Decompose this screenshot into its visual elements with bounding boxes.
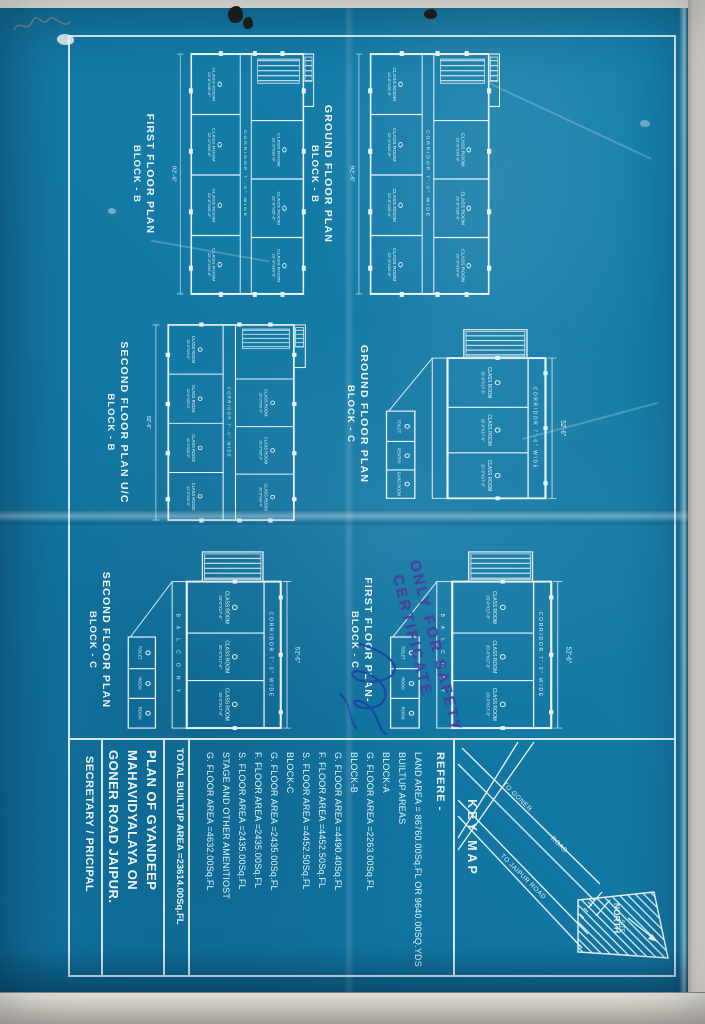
svg-text:22'-0"X20'-0": 22'-0"X20'-0" bbox=[455, 196, 459, 221]
width-dimension: 52'-6" bbox=[293, 647, 300, 664]
svg-text:20'-0"X17'-6": 20'-0"X17'-6" bbox=[218, 692, 223, 716]
reference-line: G. FLOOR AREA =4632.00Sq.FL bbox=[202, 752, 218, 967]
reference-line: G. FLOOR AREA =2435.00Sq.FL bbox=[266, 752, 282, 967]
annex-labels: TOILET ROOM ROOM bbox=[138, 646, 151, 720]
svg-text:CLASS ROOM: CLASS ROOM bbox=[212, 128, 216, 162]
key-map: SITE NORTH TO GONER ROAD TO JAIPUR ROAD … bbox=[458, 742, 674, 968]
reference-line: F. FLOOR AREA =2435.00Sq.FL bbox=[250, 752, 266, 967]
svg-text:22'-0"X20'-0": 22'-0"X20'-0" bbox=[207, 133, 210, 158]
reference-line: LAND AREA = 86760.00Sq.FL OR 9640.00SQ.Y… bbox=[410, 752, 426, 967]
plan-title: SECOND FLOOR PLAN BLOCK - C bbox=[87, 546, 112, 734]
svg-text:22'-0"X20'-0": 22'-0"X20'-0" bbox=[186, 340, 190, 361]
svg-text:TO JAIPUR ROAD: TO JAIPUR ROAD bbox=[499, 853, 547, 901]
total-divider-top bbox=[188, 740, 190, 975]
paper-edge-right bbox=[688, 0, 705, 1024]
reference-list: LAND AREA = 86760.00Sq.FL OR 9640.00SQ.Y… bbox=[202, 752, 426, 967]
reference-line: G. FLOOR AREA =2263.00Sq.FL bbox=[362, 752, 378, 967]
svg-text:22'-0"X20'-0": 22'-0"X20'-0" bbox=[272, 138, 275, 163]
svg-text:CLASS ROOM: CLASS ROOM bbox=[191, 434, 196, 462]
svg-text:CLASS ROOM: CLASS ROOM bbox=[223, 591, 229, 624]
svg-text:CLASS ROOM: CLASS ROOM bbox=[460, 133, 464, 167]
floor-plan-drawing: CORRIDOR 7'-0" WIDE CLASS ROOM22'-0"X20'… bbox=[140, 320, 308, 525]
room-labels: CLASS ROOM20'-0"X17'-6" CLASS ROOM20'-0"… bbox=[480, 367, 500, 491]
ink-stain bbox=[243, 17, 253, 29]
corridor-label: CORRIDOR 7'-0" WIDE bbox=[531, 387, 537, 470]
plan-title: FIRST FLOOR PLAN BLOCK - B bbox=[131, 48, 156, 300]
svg-text:22'-0"X20'-0": 22'-0"X20'-0" bbox=[272, 196, 275, 221]
corridor-label: CORRIDOR 7'-0" WIDE bbox=[226, 387, 231, 458]
room-labels: CLASS ROOM20'-0"X17'-6" CLASS ROOM20'-0"… bbox=[218, 591, 237, 721]
svg-text:CLASS ROOM: CLASS ROOM bbox=[212, 68, 216, 102]
svg-text:CLASS ROOM: CLASS ROOM bbox=[392, 188, 396, 222]
width-dimension: 92'-6" bbox=[171, 166, 176, 183]
svg-text:20'-0"X17'-6": 20'-0"X17'-6" bbox=[485, 692, 490, 716]
svg-text:22'-0"X20'-0": 22'-0"X20'-0" bbox=[387, 72, 391, 97]
svg-text:CLASS ROOM: CLASS ROOM bbox=[191, 385, 196, 413]
svg-text:CLASS ROOM: CLASS ROOM bbox=[191, 336, 196, 364]
reference-line: BLOCK-A bbox=[378, 752, 394, 967]
svg-text:CLASS ROOM: CLASS ROOM bbox=[392, 248, 396, 282]
reference-line: BUILTUP AREAS bbox=[394, 752, 410, 967]
svg-text:CLASS ROOM: CLASS ROOM bbox=[191, 483, 196, 511]
svg-text:PENTRY: PENTRY bbox=[396, 448, 401, 464]
floor-plan-drawing: CORRIDOR 7'-0" WIDE CLASS ROOM22'-0"X20'… bbox=[344, 48, 502, 300]
svg-text:TO GONER: TO GONER bbox=[501, 781, 533, 813]
svg-text:ROOM: ROOM bbox=[138, 707, 143, 720]
svg-text:NORTH: NORTH bbox=[612, 903, 622, 933]
plan-ground-floor-block-c: 52'-6" CORRIDOR 7'-0" WIDE CLASS ROOM20'… bbox=[345, 324, 576, 504]
svg-text:CLASS ROOM: CLASS ROOM bbox=[491, 591, 497, 624]
total-builtup-area: TOTAL BUILTUP AREA =23614.00Sq.FL bbox=[174, 748, 185, 925]
svg-text:CLASS ROOM: CLASS ROOM bbox=[264, 437, 269, 465]
svg-text:22'-0"X20'-0": 22'-0"X20'-0" bbox=[186, 389, 190, 410]
paper-speck bbox=[108, 208, 116, 214]
balcony-label: B A L C O N Y bbox=[174, 614, 180, 696]
svg-text:22'-0"X20'-0": 22'-0"X20'-0" bbox=[207, 72, 210, 97]
keymap-divider-line bbox=[453, 740, 455, 975]
total-divider-bottom bbox=[163, 740, 165, 975]
svg-text:CLASS ROOM: CLASS ROOM bbox=[276, 192, 280, 226]
floor-plan-drawing: 52'-6" CORRIDOR 7'-0" WIDE CLASS ROOM20'… bbox=[380, 324, 576, 504]
project-title: PLAN OF GYANDEEP MAHAVIDYALAYA ON GONER … bbox=[104, 750, 161, 903]
svg-text:22'-0"X20'-0": 22'-0"X20'-0" bbox=[387, 133, 391, 158]
svg-text:20'-0"X17'-6": 20'-0"X17'-6" bbox=[480, 371, 485, 394]
plan-second-floor-block-c: 52'-6" CORRIDOR 7'-0" WIDE CLASS ROOM20'… bbox=[87, 546, 310, 734]
room-labels: CLASS ROOM20'-0"X17'-6" CLASS ROOM20'-0"… bbox=[485, 591, 505, 721]
svg-text:20'-0"X17'-6": 20'-0"X17'-6" bbox=[218, 595, 223, 619]
corridor-label: CORRIDOR 7'-0" WIDE bbox=[425, 130, 429, 218]
svg-text:22'-0"X20'-0": 22'-0"X20'-0" bbox=[186, 438, 190, 459]
ink-stain bbox=[424, 9, 437, 19]
plan-title: SECOND FLOOR PLAN U/C BLOCK - B bbox=[105, 320, 130, 525]
svg-text:20'-0"X17'-6": 20'-0"X17'-6" bbox=[485, 595, 490, 619]
reference-line: S. FLOOR AREA =2435.00Sq.FL bbox=[234, 752, 250, 967]
svg-text:CLASS ROOM: CLASS ROOM bbox=[486, 414, 492, 446]
annex-labels: TOILET PENTRY GARD ROOM bbox=[396, 420, 409, 497]
handwritten-signature bbox=[325, 636, 420, 741]
svg-text:CLASS ROOM: CLASS ROOM bbox=[460, 249, 464, 283]
road-labels: TO GONER ROAD TO JAIPUR ROAD bbox=[499, 781, 569, 901]
svg-text:22'-0"X20'-0": 22'-0"X20'-0" bbox=[455, 254, 459, 279]
fold-shadow bbox=[0, 948, 688, 992]
svg-text:CLASS ROOM: CLASS ROOM bbox=[223, 688, 229, 721]
reference-line: F. FLOOR AREA =4452.50Sq.FL bbox=[314, 752, 330, 967]
svg-text:22'-0"X20'-0": 22'-0"X20'-0" bbox=[258, 440, 262, 461]
svg-text:CLASS ROOM: CLASS ROOM bbox=[276, 249, 280, 283]
floor-plan-drawing: CORRIDOR 7'-0" WIDE CLASS ROOM22'-0"X20'… bbox=[166, 48, 316, 300]
svg-text:22'-0"X20'-0": 22'-0"X20'-0" bbox=[387, 253, 391, 278]
paper-edge-top bbox=[0, 0, 705, 8]
svg-text:CLASS ROOM: CLASS ROOM bbox=[486, 460, 492, 492]
paper-edge-bottom bbox=[0, 992, 705, 1024]
svg-text:CLASS ROOM: CLASS ROOM bbox=[392, 128, 396, 162]
svg-text:22'-0"X20'-0": 22'-0"X20'-0" bbox=[186, 486, 190, 507]
svg-text:22'-0"X20'-0": 22'-0"X20'-0" bbox=[258, 393, 262, 414]
svg-text:22'-0"X20'-0": 22'-0"X20'-0" bbox=[272, 254, 275, 279]
corridor-label: CORRIDOR 7'-0" WIDE bbox=[267, 612, 273, 698]
svg-text:CLASS ROOM: CLASS ROOM bbox=[486, 367, 492, 399]
floor-plan-drawing: 52'-6" CORRIDOR 7'-0" WIDE CLASS ROOM20'… bbox=[122, 546, 310, 734]
plan-second-floor-uc-block-b: CORRIDOR 7'-0" WIDE CLASS ROOM22'-0"X20'… bbox=[105, 320, 308, 525]
project-divider bbox=[101, 740, 103, 975]
svg-text:CLASS ROOM: CLASS ROOM bbox=[460, 191, 464, 225]
width-dimension: 52'-6" bbox=[564, 647, 571, 664]
svg-text:CLASS ROOM: CLASS ROOM bbox=[491, 688, 497, 721]
svg-text:CLASS ROOM: CLASS ROOM bbox=[223, 640, 229, 673]
key-map-title: KEY MAP bbox=[465, 799, 479, 877]
svg-text:22'-0"X20'-0": 22'-0"X20'-0" bbox=[258, 487, 262, 508]
fold-crease bbox=[0, 509, 688, 525]
svg-text:CLASS ROOM: CLASS ROOM bbox=[276, 133, 280, 167]
crease bbox=[344, 8, 354, 992]
svg-text:CLASS ROOM: CLASS ROOM bbox=[491, 640, 497, 673]
plan-ground-floor-block-b: CORRIDOR 7'-0" WIDE CLASS ROOM22'-0"X20'… bbox=[309, 48, 502, 300]
svg-text:GARD ROOM: GARD ROOM bbox=[396, 472, 401, 497]
svg-text:TOILET: TOILET bbox=[396, 420, 401, 434]
svg-text:20'-0"X17'-6": 20'-0"X17'-6" bbox=[485, 645, 490, 669]
blueprint-photo: CORRIDOR 7'-0" WIDE CLASS ROOM22'-0"X20'… bbox=[0, 0, 705, 1024]
svg-text:20'-0"X17'-6": 20'-0"X17'-6" bbox=[480, 464, 485, 487]
svg-text:CLASS ROOM: CLASS ROOM bbox=[264, 483, 269, 511]
svg-text:22'-0"X20'-0": 22'-0"X20'-0" bbox=[387, 193, 391, 218]
plan-first-floor-block-b: CORRIDOR 7'-0" WIDE CLASS ROOM22'-0"X20'… bbox=[131, 48, 316, 300]
signatory-label: SECRETARY / PRICIPAL bbox=[83, 756, 95, 892]
svg-text:22'-0"X20'-0": 22'-0"X20'-0" bbox=[207, 193, 210, 218]
paper-speck bbox=[640, 120, 650, 127]
pencil-note bbox=[12, 12, 72, 38]
svg-text:CLASS ROOM: CLASS ROOM bbox=[264, 389, 269, 417]
width-dimension: 92'-6" bbox=[145, 416, 151, 430]
svg-text:TOILET: TOILET bbox=[138, 646, 143, 661]
reference-line: STAGE AND OTHER AMENITIOST bbox=[218, 752, 234, 967]
reference-line: S. FLOOR AREA =4452.50Sq.FL bbox=[298, 752, 314, 967]
svg-text:ROOM: ROOM bbox=[138, 677, 143, 690]
reference-line: BLOCK-C bbox=[282, 752, 298, 967]
svg-text:ROAD: ROAD bbox=[549, 835, 569, 855]
svg-text:22'-0"X20'-0": 22'-0"X20'-0" bbox=[455, 138, 459, 163]
corridor-label: CORRIDOR 7'-0" WIDE bbox=[243, 130, 247, 218]
ink-stain bbox=[228, 6, 243, 23]
corridor-label: CORRIDOR 7'-0" WIDE bbox=[537, 612, 543, 698]
svg-text:CLASS ROOM: CLASS ROOM bbox=[392, 68, 396, 102]
svg-text:CLASS ROOM: CLASS ROOM bbox=[212, 188, 216, 222]
svg-text:22'-0"X20'-0": 22'-0"X20'-0" bbox=[207, 253, 210, 278]
svg-text:20'-0"X17'-6": 20'-0"X17'-6" bbox=[218, 645, 223, 669]
svg-text:20'-0"X17'-6": 20'-0"X17'-6" bbox=[480, 419, 485, 442]
fold-edge bbox=[679, 8, 688, 992]
